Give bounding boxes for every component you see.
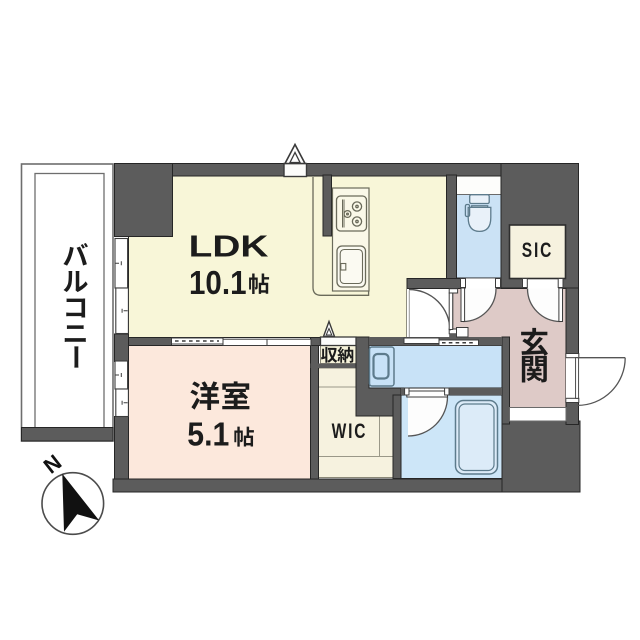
svg-text:LDK: LDK	[189, 229, 269, 264]
svg-text:SIC: SIC	[522, 238, 553, 262]
svg-text:10.1: 10.1	[189, 264, 247, 301]
svg-text:5.1: 5.1	[187, 416, 229, 453]
svg-text:WIC: WIC	[332, 419, 368, 443]
